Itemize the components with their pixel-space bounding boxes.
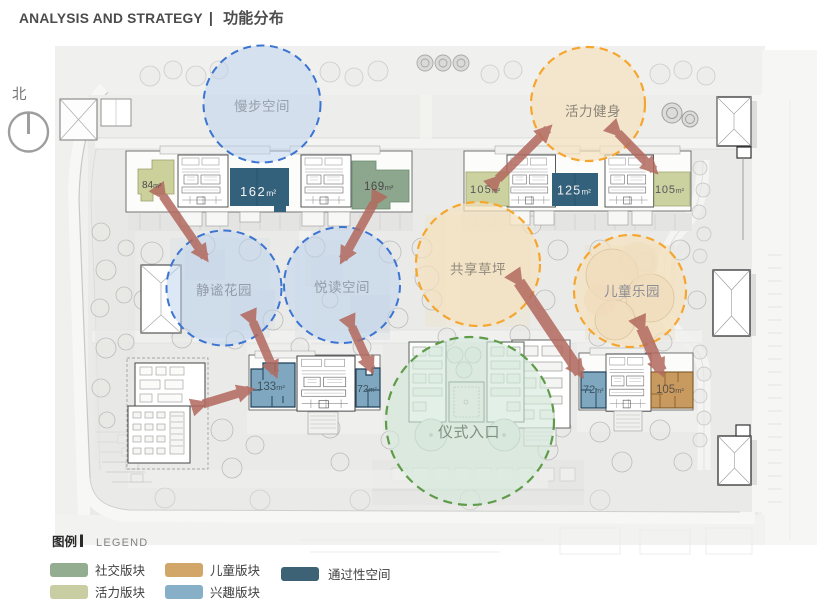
svg-text:兴趣版块: 兴趣版块 — [210, 585, 261, 600]
svg-text:活力健身: 活力健身 — [565, 104, 621, 119]
svg-text:共享草坪: 共享草坪 — [450, 261, 506, 277]
svg-text:169m²: 169m² — [364, 181, 394, 193]
svg-text:社交版块: 社交版块 — [95, 563, 146, 578]
svg-text:LEGEND: LEGEND — [96, 537, 148, 549]
svg-text:静谧花园: 静谧花园 — [196, 283, 252, 298]
svg-text:105m²: 105m² — [656, 384, 684, 396]
svg-text:通过性空间: 通过性空间 — [328, 568, 391, 582]
svg-text:133m²: 133m² — [257, 381, 285, 393]
svg-text:儿童版块: 儿童版块 — [210, 563, 261, 578]
svg-text:仪式入口: 仪式入口 — [438, 424, 500, 441]
svg-text:儿童乐园: 儿童乐园 — [604, 283, 660, 299]
svg-text:活力版块: 活力版块 — [95, 586, 146, 600]
svg-text:慢步空间: 慢步空间 — [234, 98, 290, 114]
svg-text:ANALYSIS AND STRATEGY|功能分布: ANALYSIS AND STRATEGY|功能分布 — [19, 9, 284, 27]
svg-text:图例: 图例 — [52, 534, 77, 549]
svg-text:悦读空间: 悦读空间 — [314, 280, 370, 295]
svg-text:北: 北 — [12, 86, 27, 103]
